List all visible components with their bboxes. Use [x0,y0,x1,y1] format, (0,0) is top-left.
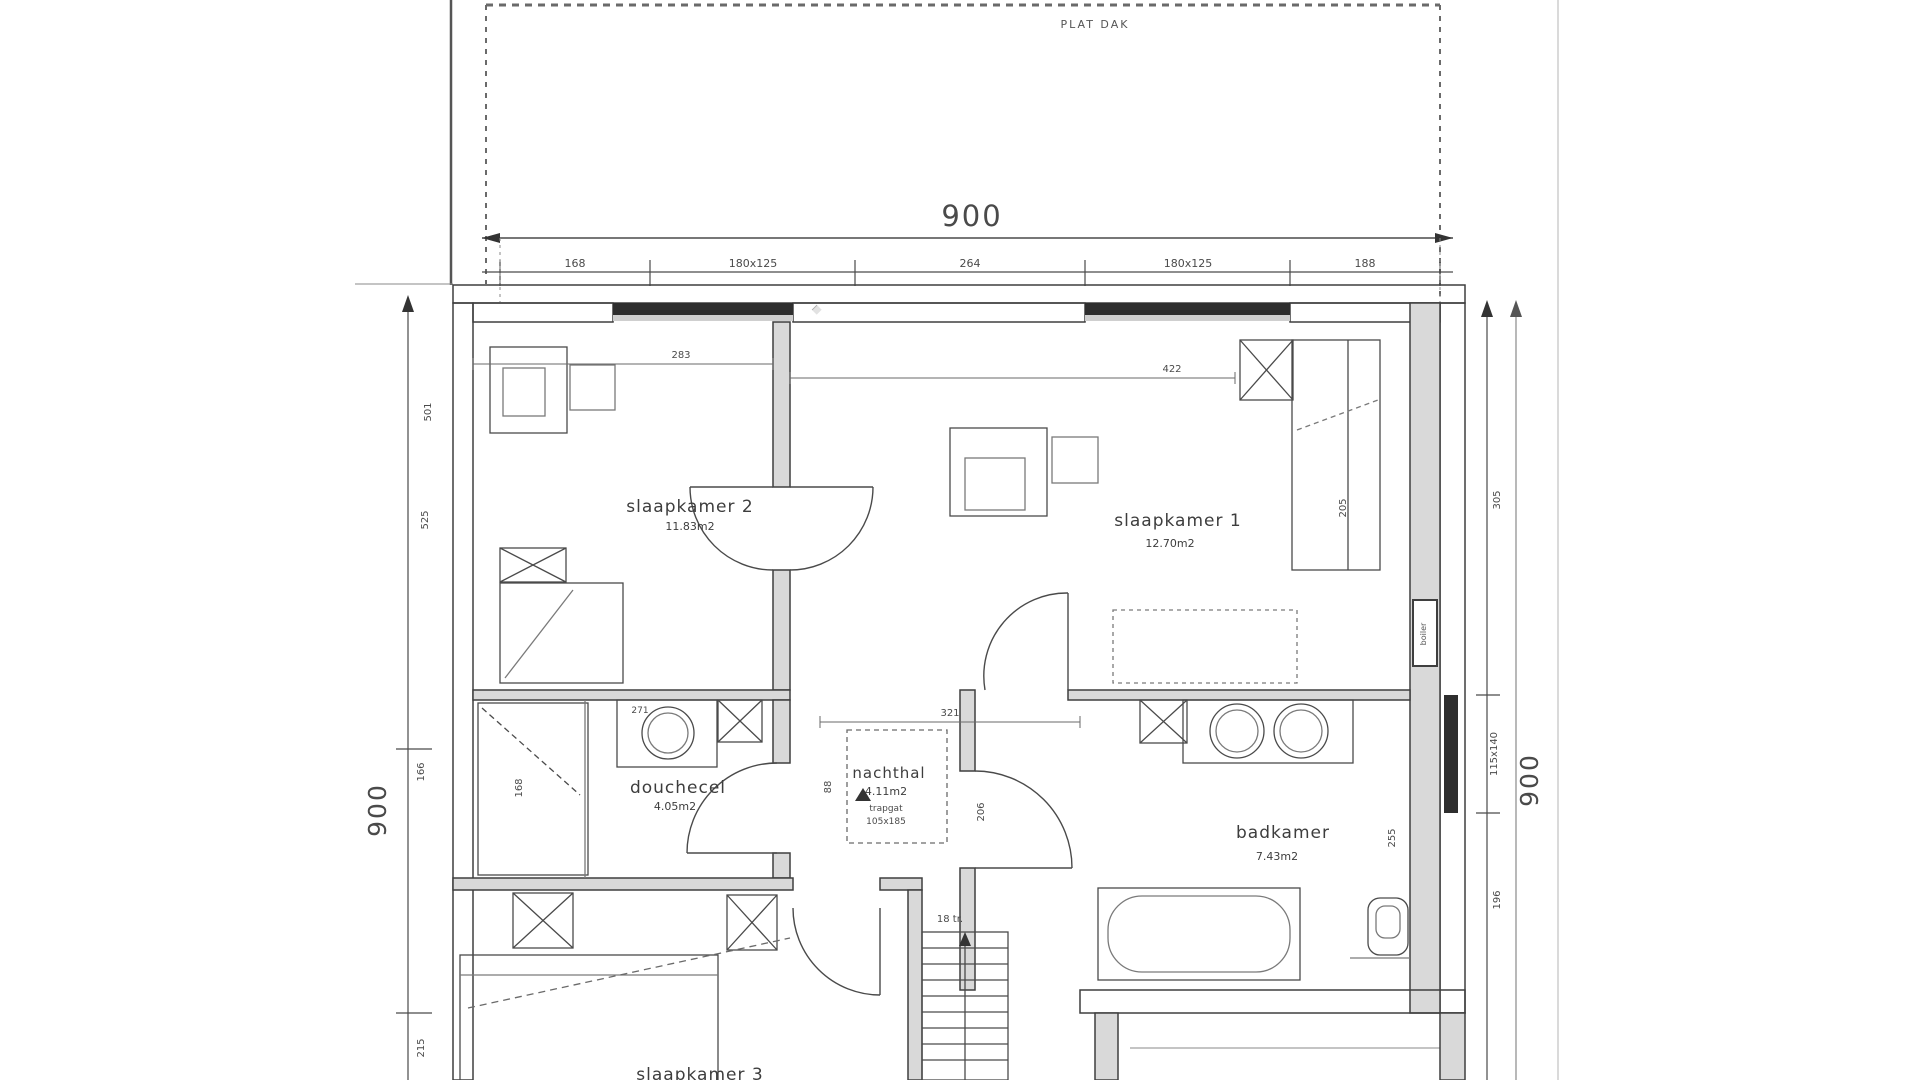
dim-right-seg-2: 115x140 [1489,732,1500,776]
room-label-badkamer: badkamer [1236,823,1330,843]
stairs-label: 18 tr. [937,914,963,925]
room-label-slaapkamer-1: slaapkamer 1 [1114,511,1241,531]
trapgat-size-label: 105x185 [866,817,906,827]
room-area-douchecel: 4.05m2 [654,800,696,813]
trapgat-label: trapgat [869,804,903,814]
dim-top-seg-1: 168 [565,257,586,270]
door-badkamer [975,771,1072,868]
room-area-slaapkamer-1: 12.70m2 [1145,537,1194,550]
doors-group [687,487,1072,995]
bathtub [1098,888,1300,980]
room-label-nachthal: nachthal [852,764,925,782]
closet-slaapkamer1 [1292,340,1380,570]
dim-left-seg-2: 166 [416,762,427,781]
toilet [1350,898,1410,958]
washing-machine-douchecel [718,700,762,742]
dim-slaapkamer2-width: 283 [671,350,690,361]
dim-nachthal-wall: 88 [823,781,834,794]
desk-slaapkamer1 [950,428,1098,516]
dim-left-seg-3: 215 [416,1038,427,1057]
dim-slaapkamer1-width: 422 [1162,364,1181,375]
dim-top-seg-3: 264 [960,257,981,270]
dim-right-seg-3: 196 [1492,890,1503,909]
dim-right-total: 900 [1515,753,1544,807]
dim-slaapkamer2-height: 501 [423,402,434,421]
door-douchecel [687,763,777,853]
floor-plan-svg: PLAT DAK 900 168 180x125 264 180x125 188 [0,0,1920,1080]
dim-top-seg-5: 188 [1355,257,1376,270]
right-dimension-line [1476,300,1522,1080]
interior-dimension-lines [473,358,1235,728]
dim-left-total: 900 [363,783,392,837]
stairs [922,932,1008,1080]
shower [478,700,588,878]
room-label-douchecel: douchecel [630,778,726,798]
door-slaapkamer1-bottom [984,593,1068,690]
furniture-group [460,340,1410,1080]
dim-badkamer-side: 255 [1387,828,1398,847]
dim-top-seg-4: 180x125 [1164,257,1213,270]
double-washbasin-badkamer [1183,700,1353,763]
dim-douche-counter: 271 [631,706,648,716]
bed-slaapkamer3 [460,955,718,1080]
room-area-slaapkamer-2: 11.83m2 [665,520,714,533]
cabinet-badkamer [1140,700,1187,743]
door-slaapkamer3 [793,908,880,995]
bed-slaapkamer2 [500,583,623,683]
dim-nachthal-side: 206 [976,802,987,821]
room-area-nachthal: 4.11m2 [865,785,907,798]
top-dimension-labels: 168 180x125 264 180x125 188 [565,257,1376,270]
room-label-slaapkamer-2: slaapkamer 2 [626,497,753,517]
window-slaapkamer2 [613,303,793,321]
room-area-badkamer: 7.43m2 [1256,850,1298,863]
dim-top-seg-2: 180x125 [729,257,778,270]
window-slaapkamer1 [1085,303,1290,321]
door-slaapkamer1-top [790,487,873,570]
dim-shower: 168 [514,778,525,797]
dim-right-seg-1: 305 [1492,490,1503,509]
wardrobe-slaapkamer3-right [727,895,777,950]
room-label-slaapkamer-3: slaapkamer 3 [636,1065,763,1080]
dim-left-seg-1: 525 [420,510,431,529]
desk-slaapkamer2 [490,347,615,433]
dim-nachthal-width: 321 [940,708,959,719]
boiler-label: boiler [1419,622,1428,645]
bed-slaapkamer1 [1113,610,1297,683]
window-right-wall [1444,695,1458,813]
wardrobe-x-slaapkamer1 [1240,340,1293,400]
wardrobe-slaapkamer2 [500,548,566,582]
boiler-cabinet: boiler [1413,600,1437,666]
dim-top-total: 900 [941,199,1002,233]
floor-plan-page: PLAT DAK 900 168 180x125 264 180x125 188 [0,0,1920,1080]
dim-slaapkamer1-wardrobe: 205 [1338,498,1349,517]
roof-label: PLAT DAK [1061,18,1130,31]
wardrobe-slaapkamer3-left [513,893,573,948]
